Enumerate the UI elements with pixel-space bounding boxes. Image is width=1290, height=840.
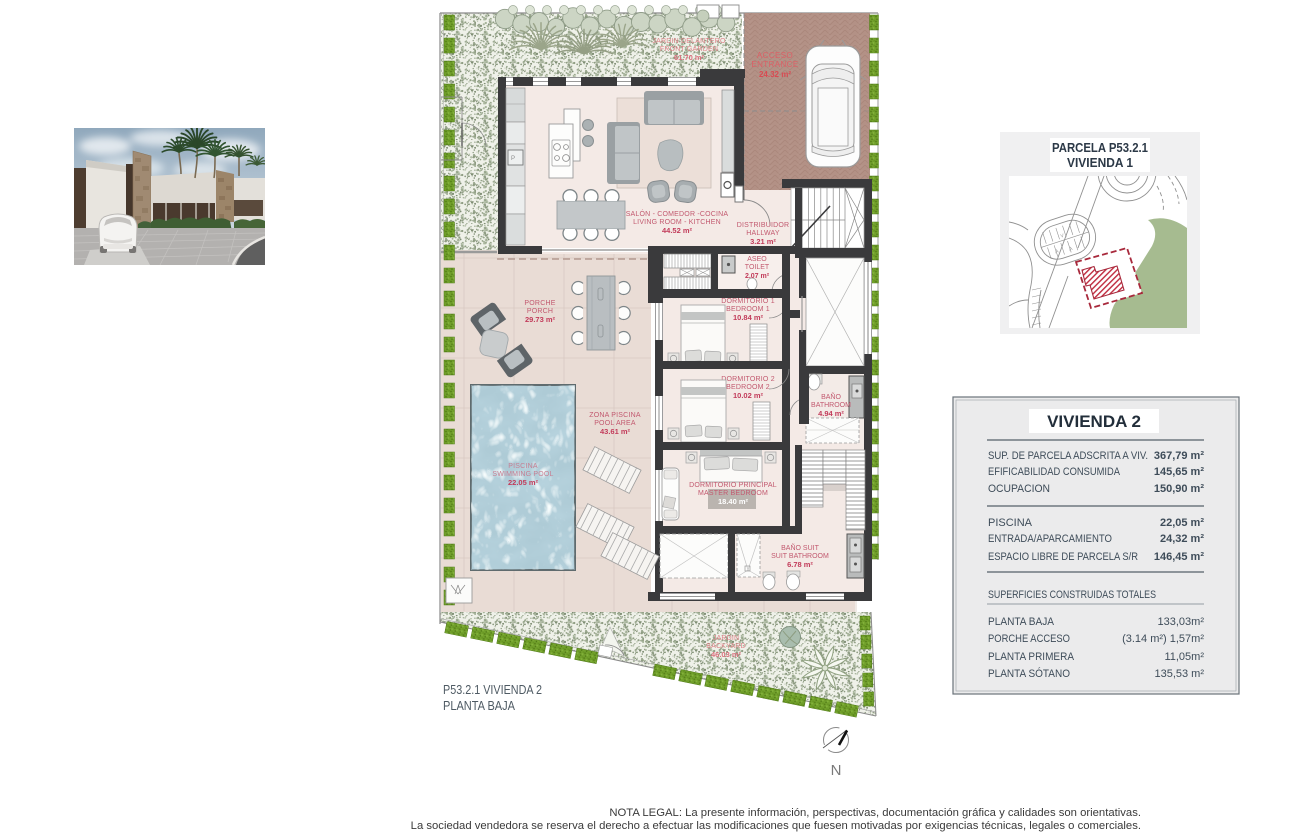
svg-text:TOILET: TOILET [745,264,770,271]
svg-text:22,05 m²: 22,05 m² [1160,517,1204,529]
svg-text:POOL AREA: POOL AREA [594,420,636,427]
svg-text:PORCHE ACCESO: PORCHE ACCESO [988,633,1070,645]
svg-text:SUPERFICIES CONSTRUIDAS TOTALE: SUPERFICIES CONSTRUIDAS TOTALES [988,589,1156,601]
svg-text:46.03 m²: 46.03 m² [711,650,742,659]
svg-text:10.02 m²: 10.02 m² [733,391,764,400]
svg-text:PORCHE: PORCHE [524,300,555,307]
svg-text:(3.14 m²) 1,57m²: (3.14 m²) 1,57m² [1122,633,1204,645]
svg-text:La sociedad vendedora se reser: La sociedad vendedora se reserva el dere… [411,820,1141,832]
svg-text:PLANTA PRIMERA: PLANTA PRIMERA [988,651,1075,663]
svg-text:18.40 m²: 18.40 m² [718,497,749,506]
svg-text:FRONT GARDEN: FRONT GARDEN [660,46,718,53]
svg-text:PISCINA: PISCINA [508,463,538,470]
svg-text:JARDIN DELANTERO: JARDIN DELANTERO [652,38,726,45]
svg-text:SUIT BATHROOM: SUIT BATHROOM [771,553,829,560]
svg-text:BACKYARD: BACKYARD [706,643,746,650]
svg-text:44.52 m²: 44.52 m² [662,226,693,235]
svg-text:VIVIENDA 2: VIVIENDA 2 [1047,412,1141,431]
svg-text:24,32 m²: 24,32 m² [1160,533,1204,545]
svg-text:61.70 m²: 61.70 m² [674,53,705,62]
svg-text:JARDIN: JARDIN [713,635,739,642]
svg-text:DORMITORIO 1: DORMITORIO 1 [721,298,775,305]
svg-text:PISCINA: PISCINA [988,517,1033,529]
svg-text:BAÑO: BAÑO [821,392,841,401]
svg-text:ACCESO: ACCESO [757,51,793,60]
svg-text:133,03m²: 133,03m² [1158,616,1205,628]
svg-text:BAÑO SUIT: BAÑO SUIT [781,543,819,552]
svg-text:ESPACIO LIBRE DE PARCELA S/R: ESPACIO LIBRE DE PARCELA S/R [988,551,1138,563]
svg-text:22.05 m²: 22.05 m² [508,478,539,487]
svg-text:OCUPACION: OCUPACION [988,483,1050,495]
svg-text:PORCH: PORCH [527,308,553,315]
svg-text:EFIFICABILIDAD CONSUMIDA: EFIFICABILIDAD CONSUMIDA [988,466,1121,478]
svg-text:MASTER BEDROOM: MASTER BEDROOM [698,490,768,497]
svg-text:24.32 m²: 24.32 m² [759,70,791,79]
svg-text:NOTA LEGAL: La presente inform: NOTA LEGAL: La presente información, per… [609,807,1141,819]
svg-text:VIVIENDA 1: VIVIENDA 1 [1067,155,1133,170]
svg-text:ENTRANCE: ENTRANCE [751,60,798,69]
svg-text:ZONA PISCINA: ZONA PISCINA [589,412,641,419]
svg-text:4.94 m²: 4.94 m² [818,409,844,418]
svg-text:DORMITORIO PRINCIPAL: DORMITORIO PRINCIPAL [689,482,777,489]
svg-text:HALLWAY: HALLWAY [746,230,780,237]
svg-text:N: N [831,762,842,779]
svg-text:P53.2.1 VIVIENDA 2: P53.2.1 VIVIENDA 2 [443,682,542,697]
svg-text:PARCELA P53.2.1: PARCELA P53.2.1 [1052,140,1148,155]
svg-text:2.07 m²: 2.07 m² [745,273,770,280]
svg-text:PLANTA BAJA: PLANTA BAJA [988,616,1055,628]
svg-text:PLANTA BAJA: PLANTA BAJA [443,698,515,713]
svg-text:10.84 m²: 10.84 m² [733,313,764,322]
svg-text:LIVING ROOM - KITCHEN: LIVING ROOM - KITCHEN [633,219,721,226]
svg-text:SWIMMING POOL: SWIMMING POOL [492,471,553,478]
svg-text:P: P [511,156,515,162]
svg-text:BEDROOM 2: BEDROOM 2 [726,384,770,391]
svg-text:PLANTA SÓTANO: PLANTA SÓTANO [988,667,1070,680]
svg-text:11,05m²: 11,05m² [1164,651,1204,663]
svg-text:43.61 m²: 43.61 m² [600,427,631,436]
svg-text:BEDROOM 1: BEDROOM 1 [726,306,770,313]
svg-text:150,90 m²: 150,90 m² [1154,483,1204,495]
svg-text:146,45 m²: 146,45 m² [1154,551,1204,563]
svg-text:DISTRIBUIDOR: DISTRIBUIDOR [737,222,790,229]
svg-text:DORMITORIO 2: DORMITORIO 2 [721,376,775,383]
svg-text:SALÓN - COMEDOR -COCINA: SALÓN - COMEDOR -COCINA [626,209,729,218]
svg-text:135,53 m²: 135,53 m² [1154,668,1204,680]
svg-text:367,79 m²: 367,79 m² [1154,450,1204,462]
svg-text:ENTRADA/APARCAMIENTO: ENTRADA/APARCAMIENTO [988,533,1112,545]
svg-text:6.78 m²: 6.78 m² [787,560,813,569]
svg-text:29.73 m²: 29.73 m² [525,315,556,324]
svg-text:ASEO: ASEO [747,256,767,263]
svg-text:145,65 m²: 145,65 m² [1154,466,1204,478]
svg-text:BATHROOM: BATHROOM [811,402,851,409]
svg-text:SUP. DE PARCELA ADSCRITA A VIV: SUP. DE PARCELA ADSCRITA A VIV. [988,450,1148,462]
svg-text:3.21 m²: 3.21 m² [750,237,776,246]
